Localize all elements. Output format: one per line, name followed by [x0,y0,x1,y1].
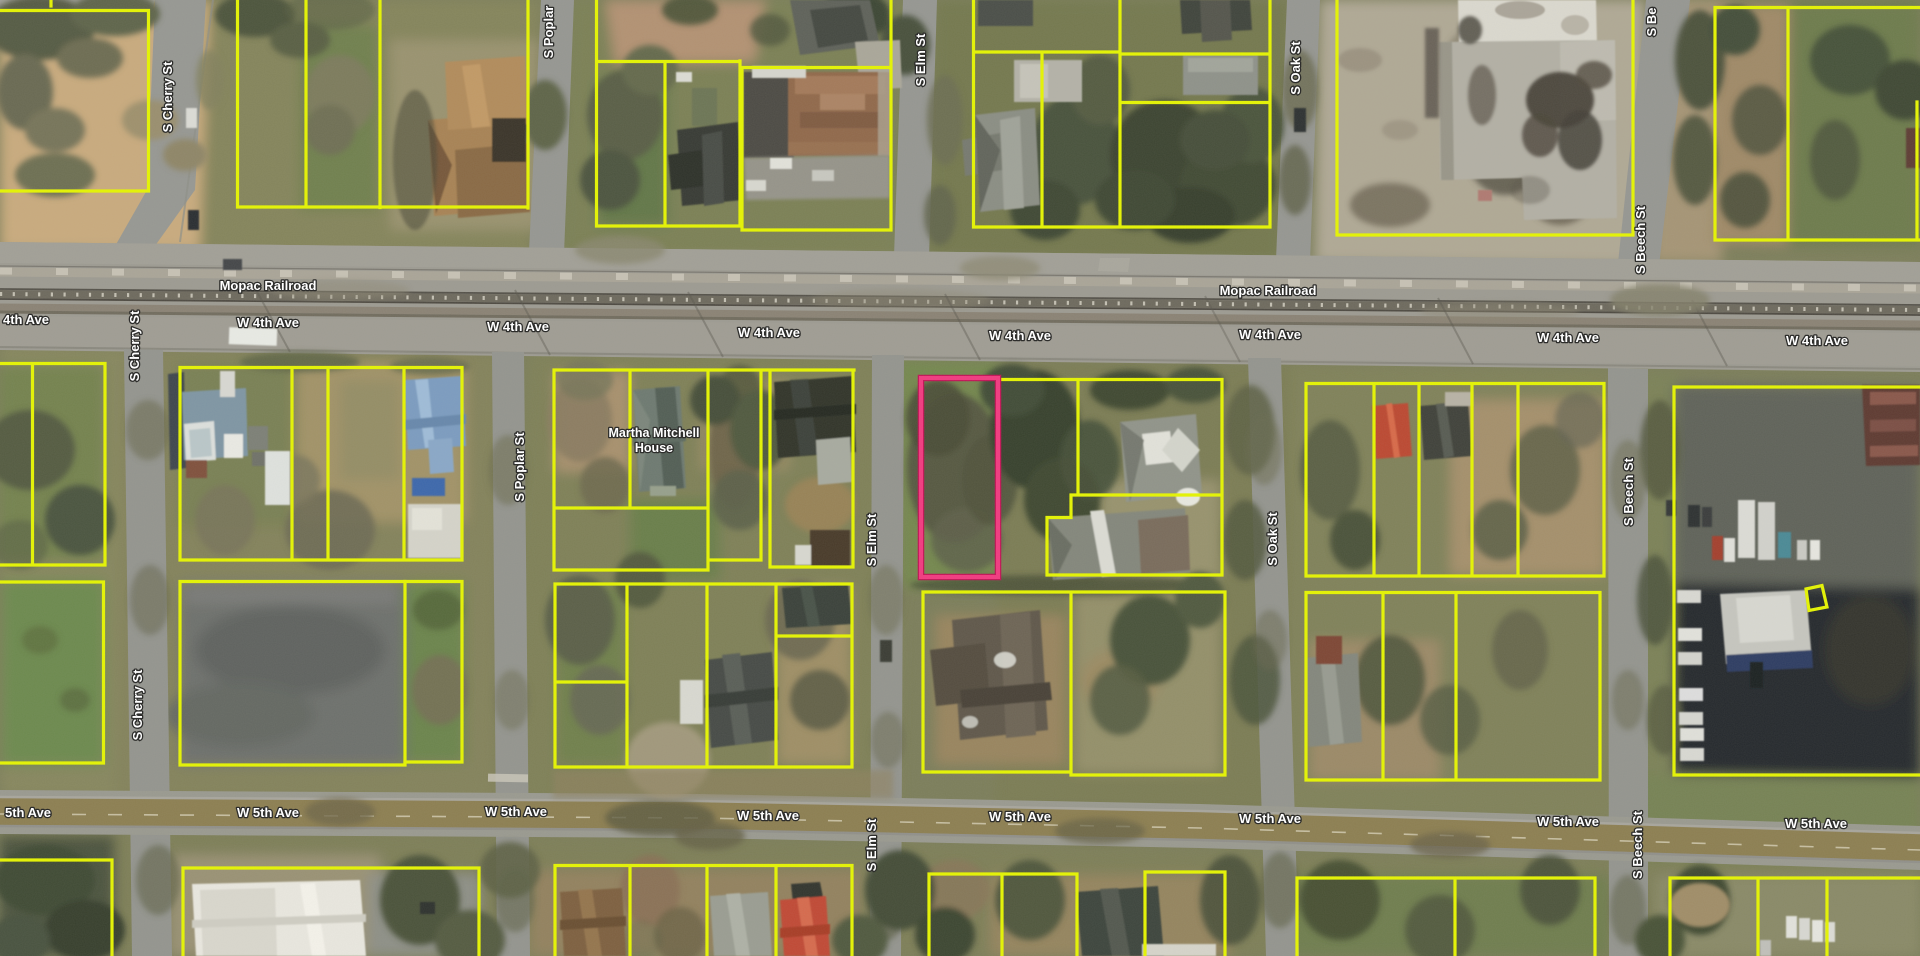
svg-text:Mopac Railroad: Mopac Railroad [220,278,317,293]
svg-text:Mopac Railroad: Mopac Railroad [1220,283,1317,298]
svg-text:W 5th Ave: W 5th Ave [1537,814,1599,829]
svg-text:W 4th Ave: W 4th Ave [487,319,549,334]
svg-text:W 5th Ave: W 5th Ave [1785,816,1847,831]
svg-text:W 4th Ave: W 4th Ave [1786,333,1848,348]
svg-text:W 4th Ave: W 4th Ave [1537,330,1599,345]
svg-text:S Poplar St: S Poplar St [512,432,527,502]
svg-text:W 4th Ave: W 4th Ave [237,315,299,330]
svg-text:S Elm St: S Elm St [864,513,879,566]
svg-text:S Cherry St: S Cherry St [160,61,175,132]
svg-text:S Poplar: S Poplar [541,6,556,59]
svg-text:S Be: S Be [1644,8,1659,37]
svg-text:Martha Mitchell: Martha Mitchell [609,426,700,440]
svg-text:S Beech St: S Beech St [1621,457,1636,526]
svg-text:4th Ave: 4th Ave [3,312,49,327]
svg-text:S Beech St: S Beech St [1633,205,1648,274]
svg-text:W 4th Ave: W 4th Ave [1239,327,1301,342]
svg-text:House: House [635,441,673,455]
svg-text:S Oak St: S Oak St [1265,512,1280,566]
svg-text:W 5th Ave: W 5th Ave [1239,811,1301,826]
svg-text:S Elm St: S Elm St [913,33,928,86]
svg-text:W 5th Ave: W 5th Ave [989,809,1051,824]
svg-text:S Elm St: S Elm St [864,818,879,871]
svg-text:S Cherry St: S Cherry St [130,669,145,740]
svg-text:5th Ave: 5th Ave [5,805,51,820]
svg-text:W 5th Ave: W 5th Ave [237,805,299,820]
svg-text:W 4th Ave: W 4th Ave [738,325,800,340]
svg-text:W 5th Ave: W 5th Ave [485,804,547,819]
svg-text:S Cherry St: S Cherry St [127,310,142,381]
svg-text:W 5th Ave: W 5th Ave [737,808,799,823]
svg-text:S Oak St: S Oak St [1288,41,1303,95]
svg-text:W 4th Ave: W 4th Ave [989,328,1051,343]
svg-text:S Beech St: S Beech St [1630,810,1645,879]
